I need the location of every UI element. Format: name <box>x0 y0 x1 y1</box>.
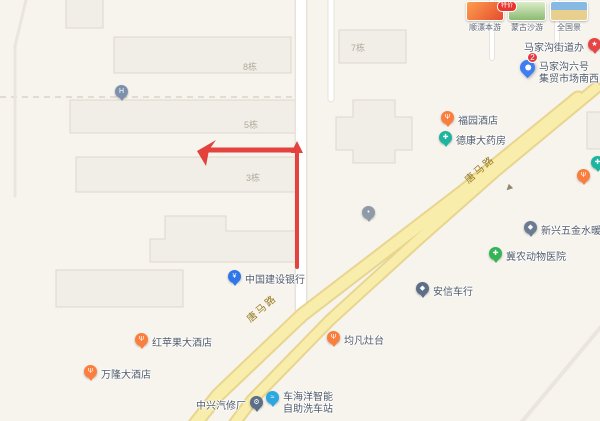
building-3 <box>76 157 297 192</box>
poi-clipped-restaurant-pin[interactable]: Ψ <box>577 169 590 182</box>
marker-number-badge: 2 <box>527 52 538 63</box>
building-label-7: 7栋 <box>351 41 365 54</box>
poi-dekang-pharmacy[interactable]: ✚ 德康大药房 <box>439 131 506 147</box>
bank-icon: ¥ <box>228 270 241 283</box>
pharmacy-icon: ✚ <box>439 131 452 144</box>
poi-junfan-zaotai-restaurant[interactable]: Ψ 均凡灶台 <box>327 331 384 347</box>
map-base-layer <box>0 0 600 421</box>
map-canvas[interactable]: 8栋 5栋 3栋 7栋 唐马路 唐马路 ▶ 马家沟街道办 ★ Ψ 福园酒店 ✚ … <box>0 0 600 421</box>
building-label-3: 3栋 <box>246 171 260 184</box>
building <box>56 270 183 307</box>
facility-icon: H <box>115 85 128 98</box>
poi-xinxing-hardware[interactable]: ◆ 新兴五金水暖建材 <box>524 221 600 237</box>
poi-clipped-pharmacy-pin[interactable]: ✚ <box>591 156 600 169</box>
poi-ccb-bank[interactable]: ¥ 中国建设银行 <box>228 270 305 286</box>
poi-jinong-animal-hospital[interactable]: ✚ 冀农动物医院 <box>489 247 566 263</box>
building <box>587 112 600 149</box>
car-repair-icon: ⚙ <box>250 396 263 409</box>
poi-red-apple-hotel[interactable]: Ψ 红苹果大酒店 <box>135 333 212 349</box>
restaurant-icon: Ψ <box>327 331 340 344</box>
destination-label: 马家沟六号 集贸市场南西门 <box>539 62 600 85</box>
pharmacy-icon: ✚ <box>591 156 600 169</box>
poi-majiagou-subdistrict-office[interactable]: 马家沟街道办 ★ <box>524 38 600 54</box>
restaurant-icon: Ψ <box>577 169 590 182</box>
travel-card-caption[interactable]: 全国景 <box>549 22 589 33</box>
building-7 <box>339 30 406 63</box>
building <box>66 0 103 28</box>
restaurant-icon: Ψ <box>135 333 148 346</box>
generic-poi-icon: • <box>362 206 375 219</box>
poi-fuyuan-hotel[interactable]: Ψ 福园酒店 <box>441 111 498 127</box>
travel-card-caption[interactable]: 顺漂本游 <box>465 22 505 33</box>
price-badge: 特价 <box>497 1 517 12</box>
poi-anxin-car-dealer[interactable]: ◆ 安信车行 <box>416 282 473 298</box>
poi-car-wash-station[interactable]: ≈ 车海洋智能 自助洗车站 <box>266 391 333 415</box>
building-5 <box>70 100 295 133</box>
car-dealer-icon: ◆ <box>416 282 429 295</box>
animal-hospital-icon: ✚ <box>489 247 502 260</box>
travel-card-thumbnail[interactable] <box>550 1 588 21</box>
poi-generic-pin[interactable]: • <box>362 206 375 219</box>
car-wash-icon: ≈ <box>266 391 279 404</box>
hardware-store-icon: ◆ <box>524 221 537 234</box>
building-label-5: 5栋 <box>244 118 258 131</box>
poi-wanlong-hotel[interactable]: Ψ 万隆大酒店 <box>84 365 151 381</box>
restaurant-icon: Ψ <box>84 365 97 378</box>
government-icon: ★ <box>588 38 600 51</box>
travel-card-caption[interactable]: 蒙古沙游 <box>507 22 547 33</box>
poi-facility-pin[interactable]: H <box>115 85 128 98</box>
poi-zhongxing-auto-repair[interactable]: 中兴汽修厂 ⚙ <box>196 396 263 412</box>
building-label-8: 8栋 <box>243 60 257 73</box>
building-8 <box>114 37 291 73</box>
restaurant-icon: Ψ <box>441 111 454 124</box>
